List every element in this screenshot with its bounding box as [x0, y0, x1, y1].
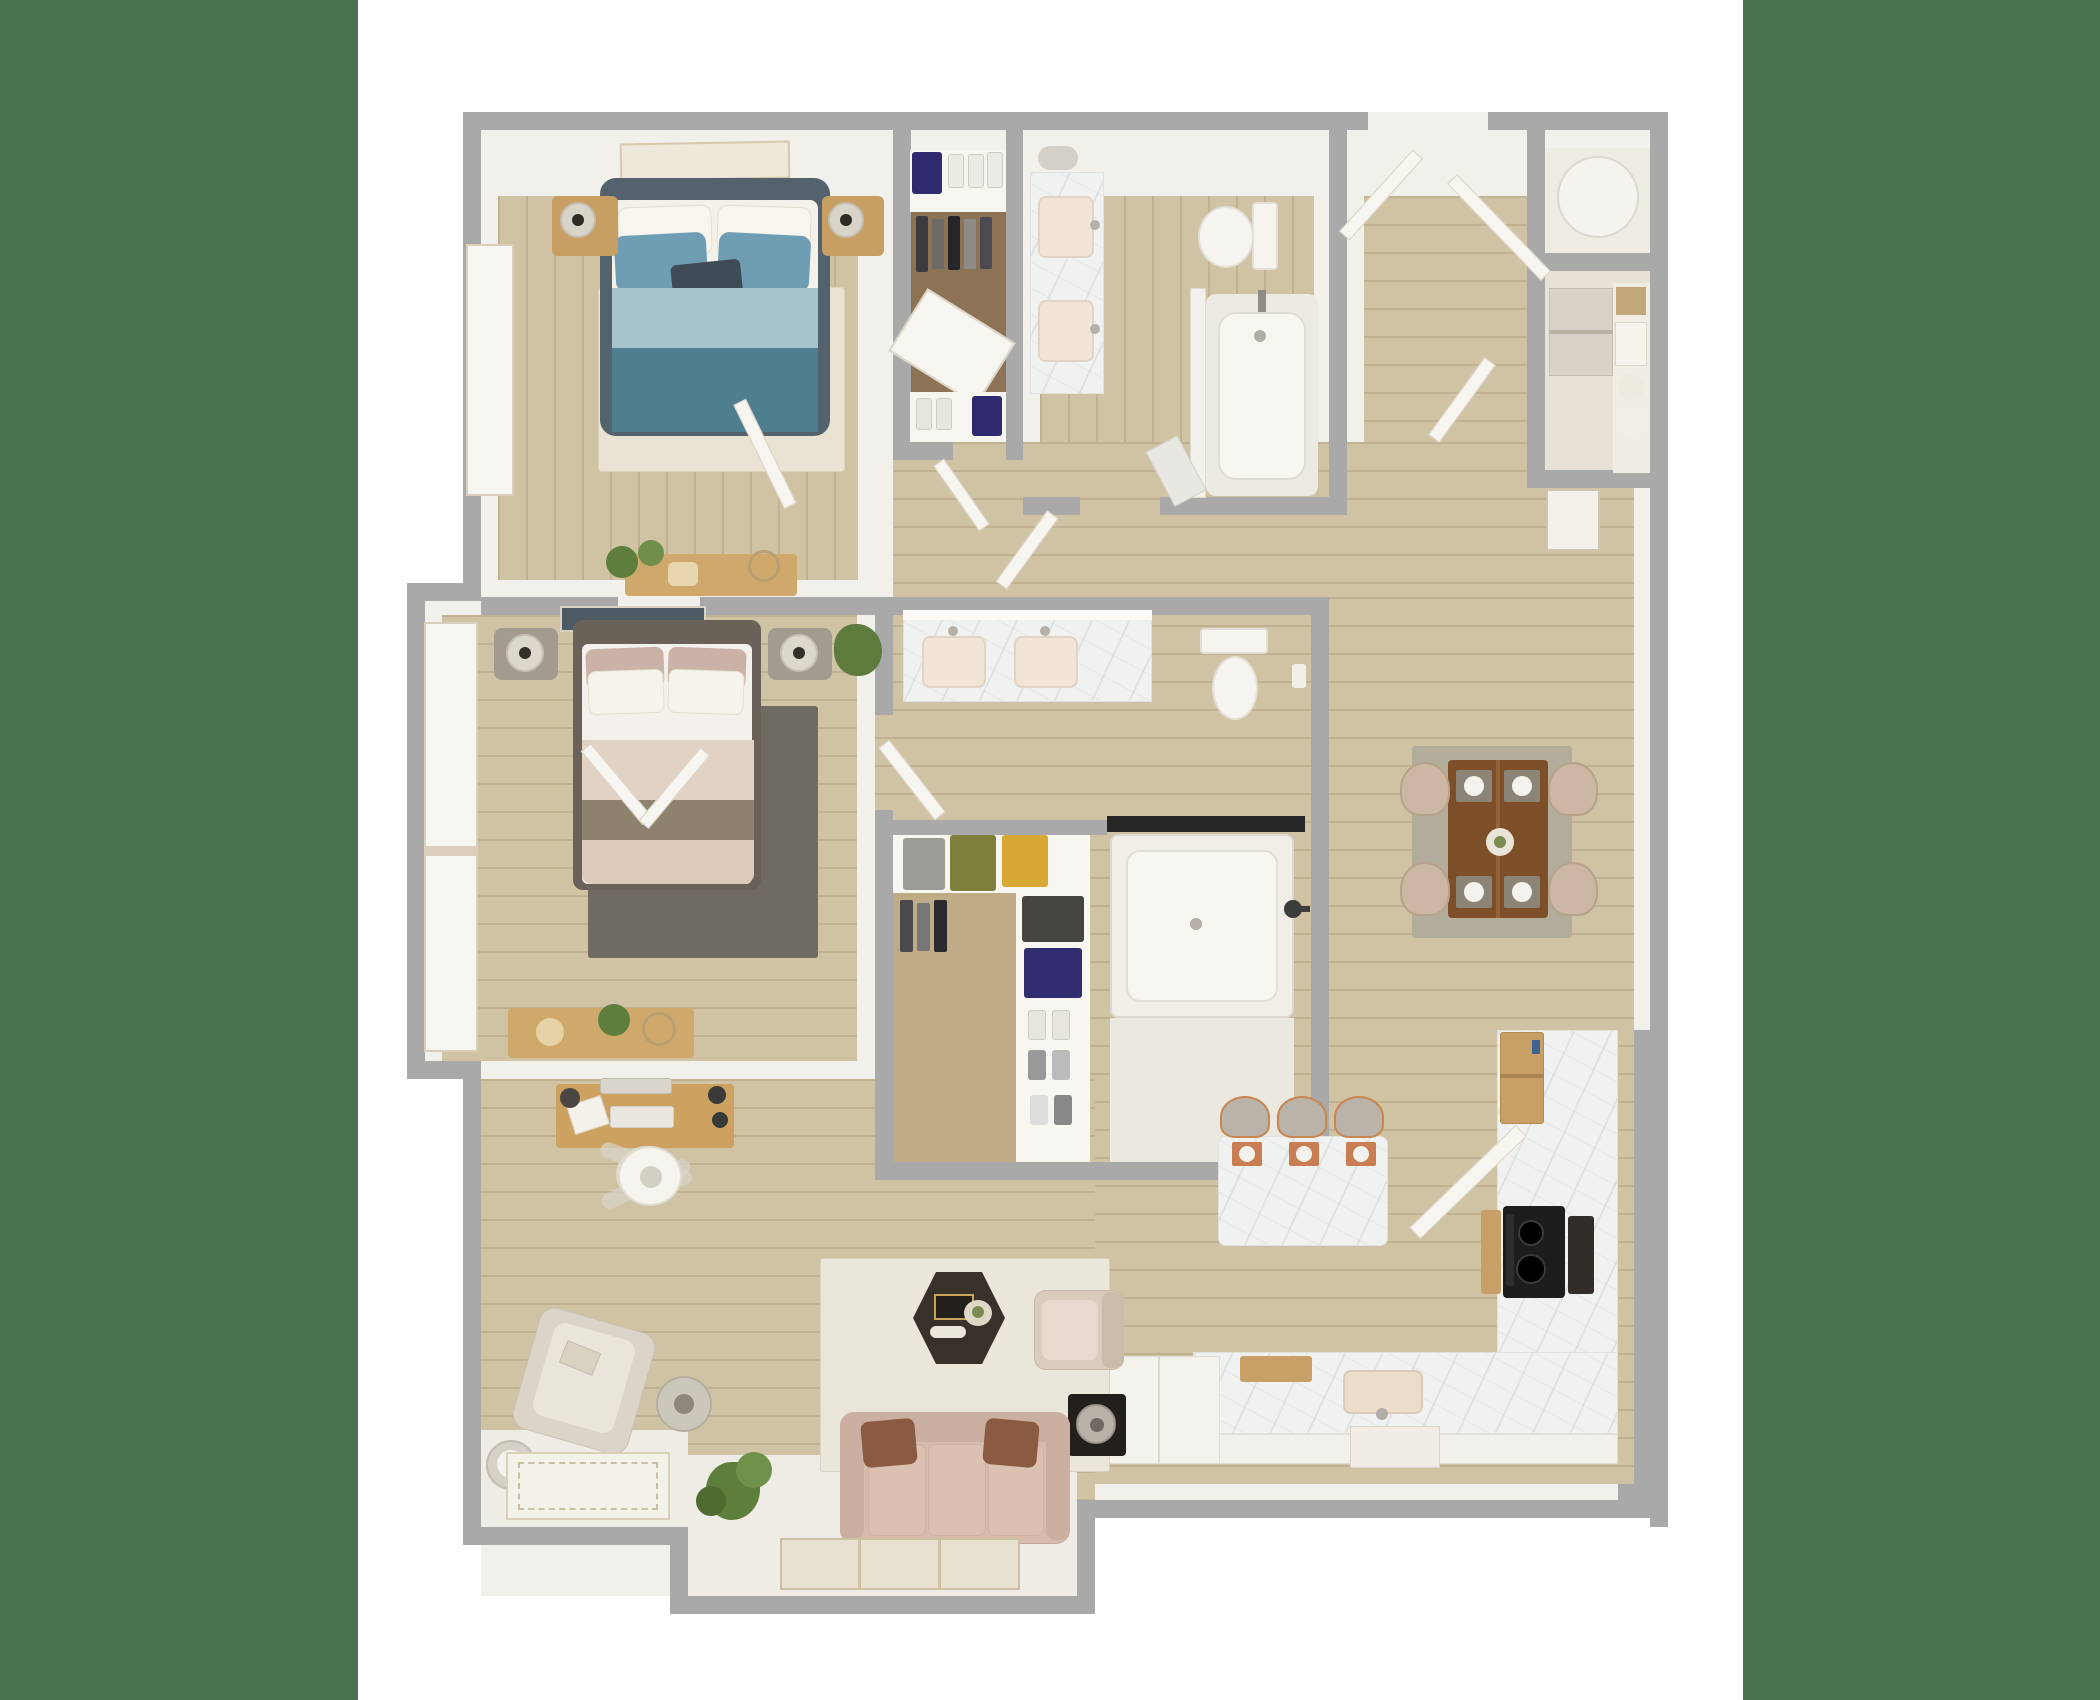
sofa-arm-right	[1046, 1416, 1070, 1540]
wall-oven	[1568, 1216, 1594, 1294]
wall-bath1-east	[1329, 130, 1347, 515]
island-plate-2	[1296, 1146, 1312, 1162]
sofa-pillow-brown-2	[982, 1418, 1040, 1469]
lamp1-right-shade	[840, 214, 852, 226]
closet2-bin-yellow	[1002, 835, 1048, 887]
window-bedroom1	[466, 244, 514, 496]
fridge-display	[1532, 1040, 1540, 1054]
bath2-sink-1	[922, 636, 986, 688]
console1-plant-1	[606, 546, 638, 578]
closet2-shoe-6	[1054, 1095, 1072, 1125]
dresser-plant	[598, 1004, 630, 1036]
closet2-shoe-3	[1028, 1050, 1046, 1080]
bath1-sconce	[1038, 146, 1078, 170]
dining-centerpiece-greens	[1494, 836, 1506, 848]
dining-chair-4	[1548, 862, 1598, 916]
closet1-garment-4	[964, 219, 976, 269]
sofa-pillow-brown-1	[860, 1418, 918, 1469]
dining-plate-3	[1464, 882, 1484, 902]
closet2-garment-3	[934, 900, 947, 952]
desk-speaker-1	[708, 1086, 726, 1104]
dining-chair-1	[1400, 762, 1450, 816]
closet1-shoe-4	[916, 398, 932, 430]
louver-vent	[1546, 489, 1600, 551]
entry-threshold	[1368, 112, 1488, 130]
dresser-lamp-ring	[642, 1012, 676, 1046]
wall-closet1-south	[893, 442, 953, 460]
bath2-faucet-2	[1040, 626, 1050, 636]
bed2-foot-fold	[582, 840, 754, 884]
wall-utility-left	[1527, 130, 1545, 473]
closet2-bin-darkgray	[1022, 896, 1084, 942]
floorplan-canvas	[0, 0, 2100, 1700]
bed2-pillow-white-2	[667, 669, 744, 716]
cabinet-seam	[1158, 1356, 1160, 1464]
fridge-door-split	[1500, 1074, 1544, 1078]
wall-right	[1650, 112, 1668, 1527]
closet1-shoe-5	[936, 398, 952, 430]
bath2-paper-holder	[1292, 664, 1306, 688]
wall-bath1-south-a	[1023, 497, 1080, 515]
dishwasher-open	[1350, 1426, 1440, 1468]
dining-plate-4	[1512, 882, 1532, 902]
shower-glass	[1107, 816, 1305, 832]
bath1-faucet-1	[1090, 220, 1100, 230]
closet1-shoe-3	[987, 152, 1003, 188]
pantry-fridge-split	[1549, 330, 1613, 334]
desk-keyboard	[610, 1106, 674, 1128]
desk-speaker-2	[712, 1112, 728, 1128]
desk-lamp	[560, 1088, 580, 1108]
closet2-shoe-1	[1028, 1010, 1046, 1040]
closet1-shoe-2	[968, 154, 984, 188]
closet2-shoe-2	[1052, 1010, 1070, 1040]
coffee-table-chain-decor	[930, 1326, 966, 1338]
closet1-garment-5	[980, 217, 992, 269]
dresser-starburst	[536, 1018, 564, 1046]
living-plant-3	[696, 1486, 726, 1516]
dining-chair-2	[1400, 862, 1450, 916]
wall-bottomleft-h	[463, 1527, 688, 1545]
armchair-back	[1102, 1292, 1124, 1368]
green-band-left	[0, 0, 358, 1700]
shower-drain	[1190, 918, 1202, 930]
lamp2-right-shade	[793, 647, 805, 659]
bathtub-shower-head	[1258, 290, 1266, 312]
closet1-garment-3	[948, 216, 960, 270]
bath2-sink-2	[1014, 636, 1078, 688]
pantry-jar-2	[1616, 406, 1646, 436]
lamp1-left-shade	[572, 214, 584, 226]
dining-plate-1	[1464, 776, 1484, 796]
bath1-sink-2	[1038, 300, 1094, 362]
dining-plate-2	[1512, 776, 1532, 796]
wall-bottom-kitchen	[1077, 1500, 1668, 1518]
closet2-garment-2	[917, 903, 930, 951]
dining-chair-3	[1548, 762, 1598, 816]
bedroom2-plant	[834, 624, 882, 676]
patio-door-panel	[780, 1538, 1020, 1590]
wall-bottom-living	[670, 1596, 1095, 1614]
wall-bedroom1-east	[893, 130, 911, 460]
closet1-bin-navy	[912, 152, 942, 194]
sofa-cushion-2	[928, 1444, 986, 1536]
bar-stool-3	[1334, 1096, 1384, 1138]
pantry-basket	[1616, 287, 1646, 315]
cooktop-knobs	[1506, 1214, 1514, 1286]
wall-protrusion-bottom	[407, 1061, 481, 1079]
closet1-shoe-1	[948, 154, 964, 188]
bar-stool-2	[1277, 1096, 1327, 1138]
closet2-garment-1	[900, 900, 913, 952]
lamp2-left-shade	[519, 647, 531, 659]
wall-closet2-top	[893, 820, 1107, 835]
closet2-bin-gray	[903, 838, 945, 890]
closet1-garment-1	[916, 216, 928, 272]
shower-arm	[1296, 906, 1310, 912]
armchair-seat	[1042, 1300, 1098, 1360]
water-heater	[1557, 156, 1639, 238]
pantry-tray	[1615, 322, 1647, 366]
bath1-toilet-tank	[1252, 202, 1278, 270]
window-bedroom2	[424, 622, 478, 1052]
closet2-shoe-5	[1030, 1095, 1048, 1125]
kitchen-faucet	[1376, 1408, 1388, 1420]
window-mullion	[424, 846, 478, 856]
wall-bath2-east	[1311, 615, 1329, 1180]
closet1-bin-navy-2	[972, 396, 1002, 436]
entry-mat-inner	[518, 1462, 658, 1510]
bedroom1-wall-art	[620, 141, 791, 182]
closet2-shoe-4	[1052, 1050, 1070, 1080]
closet2-bin-navy	[1024, 948, 1082, 998]
cooktop-burner-1	[1518, 1220, 1544, 1246]
wall-bedroom1-south-b	[700, 597, 895, 615]
island-plate-3	[1353, 1146, 1369, 1162]
bath1-toilet-bowl	[1198, 206, 1254, 268]
bathtub-drain	[1254, 330, 1266, 342]
wall-bath2-west-b	[875, 810, 893, 1180]
bed2-pillow-white-1	[587, 669, 664, 716]
green-band-right	[1743, 0, 2100, 1700]
patio-door-seam-1	[858, 1538, 861, 1590]
desk-monitor	[600, 1078, 672, 1094]
cooktop-burner-2	[1516, 1254, 1546, 1284]
bath2-toilet-tank	[1200, 628, 1268, 654]
floor-lamp-center	[674, 1394, 694, 1414]
bath2-toilet-bowl	[1212, 656, 1258, 720]
closet1-garment-2	[932, 219, 944, 269]
closet2-bin-olive	[950, 835, 996, 891]
bar-stool-1	[1220, 1096, 1270, 1138]
pantry-jar-1	[1618, 374, 1644, 400]
coffee-table-flower-greens	[972, 1306, 984, 1318]
console1-lamp-ring	[748, 550, 780, 582]
living-plant-2	[736, 1452, 772, 1488]
cutting-board-right	[1481, 1210, 1501, 1294]
bath2-vanity-ledge	[903, 610, 1152, 620]
shower-base-inner	[1126, 850, 1278, 1002]
cutting-board-bottom	[1240, 1356, 1312, 1382]
console1-plant-2	[638, 540, 664, 566]
wall-protrusion-left	[407, 583, 425, 1079]
island-plate-1	[1239, 1146, 1255, 1162]
wall-closet1-east	[1006, 130, 1023, 460]
bed1-throw	[612, 348, 818, 432]
side-table-lamp-center	[1090, 1418, 1104, 1432]
bath2-faucet-1	[948, 626, 958, 636]
bath1-faucet-2	[1090, 324, 1100, 334]
bath1-sink-1	[1038, 196, 1094, 258]
wall-left-lower	[463, 1079, 481, 1545]
patio-door-seam-2	[938, 1538, 941, 1590]
ceiling-fan-hub	[640, 1166, 662, 1188]
console1-decor	[668, 562, 698, 586]
